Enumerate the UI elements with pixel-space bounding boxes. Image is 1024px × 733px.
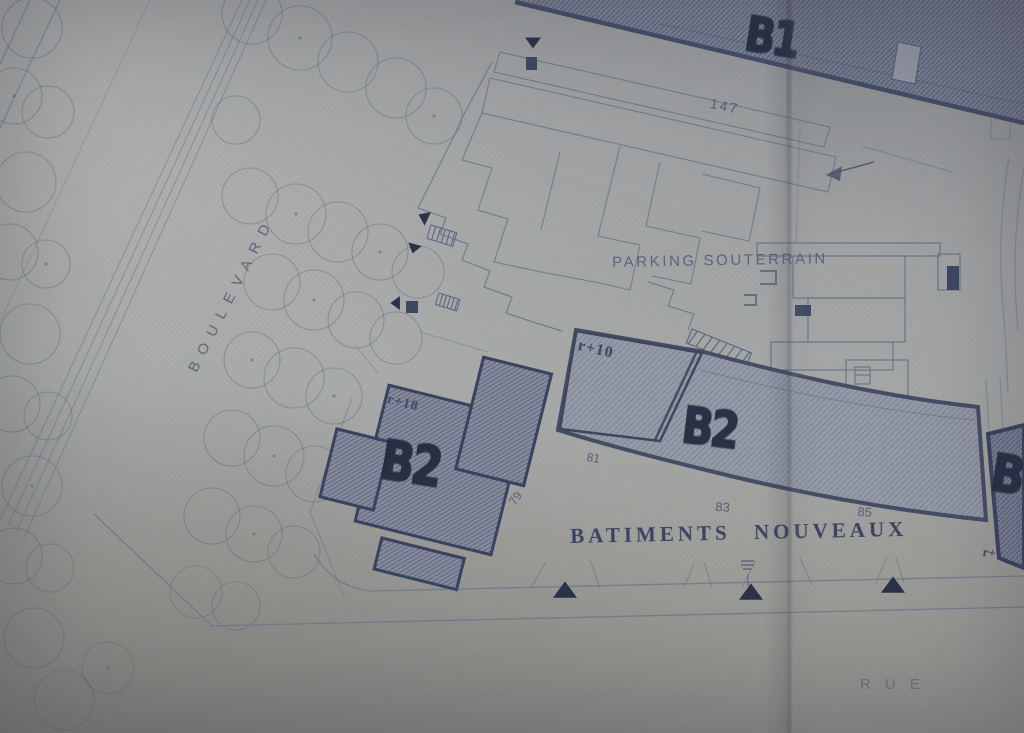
height-partial-label: r+ [981,544,997,562]
tree-center-dot [432,114,435,117]
tree-center-dot [12,94,15,97]
solid-square-marker [947,266,959,290]
tree-circle [22,86,74,138]
tree-circle [2,0,62,58]
solid-square-marker [795,305,811,316]
tree-center-dot [332,394,335,397]
tree-circle [0,376,40,432]
tree-circle [204,410,260,466]
survey-triangle-marker [553,581,577,597]
tree-center-dot [250,358,253,361]
tree-center-dot [298,36,301,39]
site-plan-drawing [0,0,1024,733]
tree-center-dot [252,532,255,535]
driveway-splays [530,558,904,589]
tree-center-dot [294,212,297,215]
tree-circle [0,304,60,364]
rue-label: RUE [860,676,934,693]
building-b1-label: B1 [741,6,802,70]
site-plan-photo: B1 B2 B2 B PARKING SOUTERRAIN BATIMENTS … [0,0,1024,733]
tree-circle [0,152,56,212]
tree-circle [212,96,260,144]
survey-triangle-marker [390,296,400,310]
tree-circle [184,488,240,544]
tree-center-dot [312,298,315,301]
building-b2-left-label: B2 [376,428,445,500]
tree-center-dot [30,484,33,487]
tree-circle [222,0,282,44]
tree-circle [318,32,378,92]
tree-circle [308,202,368,262]
tree-circle [212,582,260,630]
building-b2-curved [558,330,986,520]
tree-circle [0,528,42,584]
arrow-icon [826,162,874,181]
tree-center-dot [44,262,47,265]
tree-circle [366,58,426,118]
tree-center-dot [272,454,275,457]
address-85-label: 85 [857,504,872,520]
solid-square-marker [526,57,537,70]
tree-center-dot [378,250,381,253]
trees-layer [0,0,462,730]
tree-circle [222,168,278,224]
tree-center-dot [106,666,109,669]
building-b2-curved-label: B2 [679,396,741,460]
address-83-label: 83 [715,499,730,515]
tree-circle [26,544,74,592]
address-81-label: 81 [586,450,602,466]
tree-circle [4,608,64,668]
solid-square-marker [406,301,418,313]
survey-triangle-marker [525,38,541,49]
